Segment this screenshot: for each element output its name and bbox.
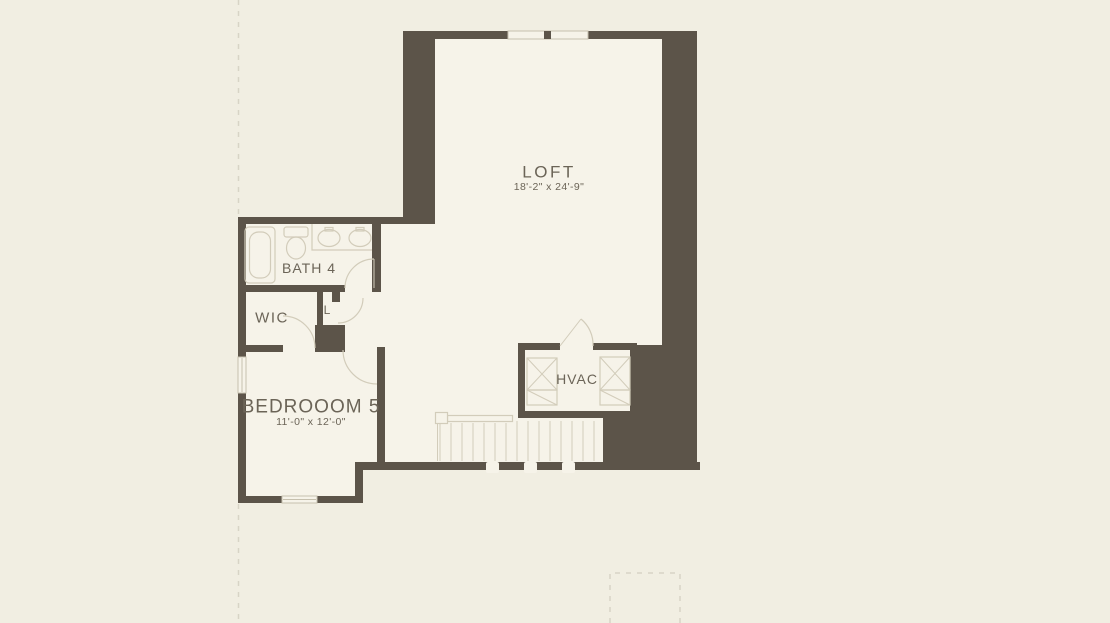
wall-segment [637,345,697,470]
wall-segment [662,31,697,345]
wall-segment [238,285,345,292]
stair-railing [448,416,513,422]
wall-segment [317,496,363,503]
stair-newel-post [436,413,448,424]
linen-label: L [324,304,331,316]
post-gap [486,462,499,473]
loft-dimensions: 18'-2" x 24'-9" [514,182,585,193]
wall-segment [518,411,637,418]
post-gap [524,462,537,473]
floor-plan-drawing [0,0,1110,623]
floor-plan-canvas: LOFT 18'-2" x 24'-9" BATH 4 WIC L BEDROO… [0,0,1110,623]
loft-label: LOFT [522,164,575,181]
bath-label: BATH 4 [282,261,336,275]
wall-segment [372,224,381,292]
wall-segment [315,325,345,352]
wall-segment [518,343,525,418]
hvac-label: HVAC [556,372,598,386]
dashed-boundary-rect [610,573,680,623]
wall-segment [238,496,282,503]
loft-window-mullion [544,31,551,39]
wall-segment [403,31,435,224]
wic-label: WIC [255,311,289,326]
wall-segment [630,343,637,418]
post-gap [562,462,575,473]
wall-segment [332,292,340,302]
wall-segment [238,345,283,352]
wall-segment [238,217,435,224]
bedroom-dimensions: 11'-0" x 12'-0" [276,417,346,428]
bedroom-label: BEDROOOM 5 [242,398,381,417]
